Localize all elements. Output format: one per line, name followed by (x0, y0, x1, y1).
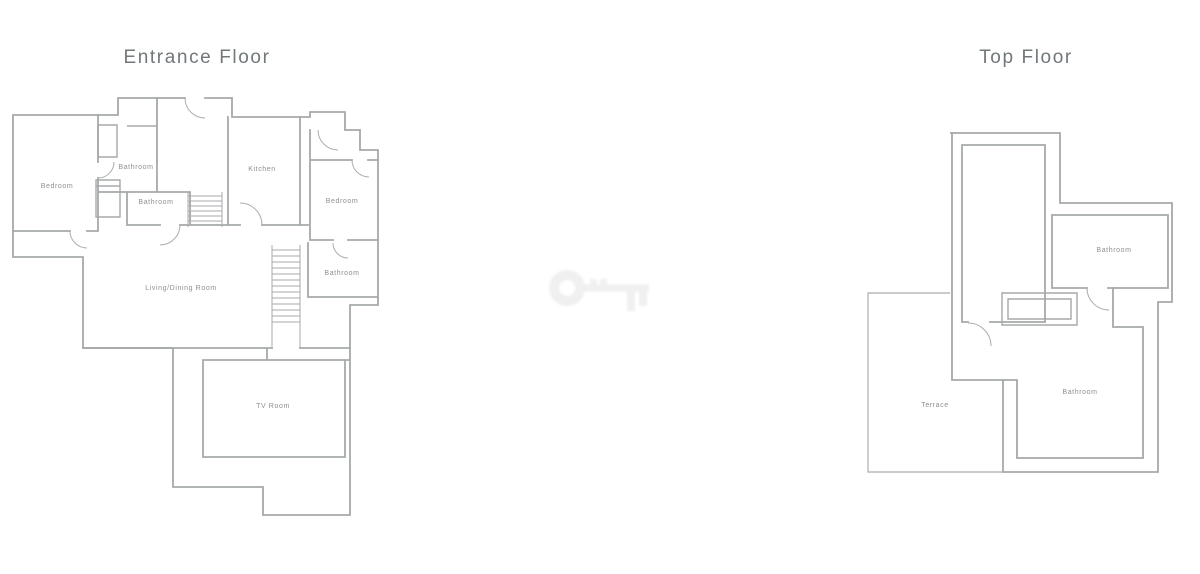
room-label-kitchen: Kitchen (248, 166, 276, 173)
room-label-tv-room: TV Room (256, 403, 290, 410)
key-watermark-icon (554, 275, 649, 311)
entrance-floor-title: Entrance Floor (123, 47, 270, 68)
main-stairs (272, 245, 300, 348)
room-label-bathroom-right: Bathroom (324, 270, 359, 277)
top-door-arcs (968, 288, 1109, 346)
terrace-outline (868, 293, 1003, 472)
upper-stairs (188, 192, 222, 227)
top-lower-room-walls (1003, 288, 1143, 458)
room-label-top-bathroom-lower: Bathroom (1062, 389, 1097, 396)
entrance-floor-plan: Entrance Floor Bedroom Bathroom Bathroom… (13, 47, 378, 515)
top-floor-plan: Top Floor Bathroom Bathroom Terrace (868, 47, 1172, 472)
floorplan-page: Entrance Floor Bedroom Bathroom Bathroom… (0, 0, 1200, 574)
top-outer-walls (950, 133, 1172, 472)
room-label-bedroom-right: Bedroom (326, 198, 359, 205)
room-label-bedroom-left: Bedroom (41, 183, 74, 190)
top-floor-title: Top Floor (979, 47, 1073, 68)
entrance-partition-walls (13, 98, 378, 457)
room-label-bathroom-mid: Bathroom (138, 199, 173, 206)
room-label-living-dining: Living/Dining Room (145, 285, 217, 292)
floorplan-drawing: Entrance Floor Bedroom Bathroom Bathroom… (0, 0, 1200, 574)
stairwell-walls (962, 145, 1045, 322)
entrance-door-arcs (70, 98, 369, 258)
room-label-bathroom-top: Bathroom (118, 164, 153, 171)
landing-box (1002, 293, 1077, 325)
room-label-terrace: Terrace (921, 402, 949, 409)
room-label-top-bathroom-upper: Bathroom (1096, 247, 1131, 254)
